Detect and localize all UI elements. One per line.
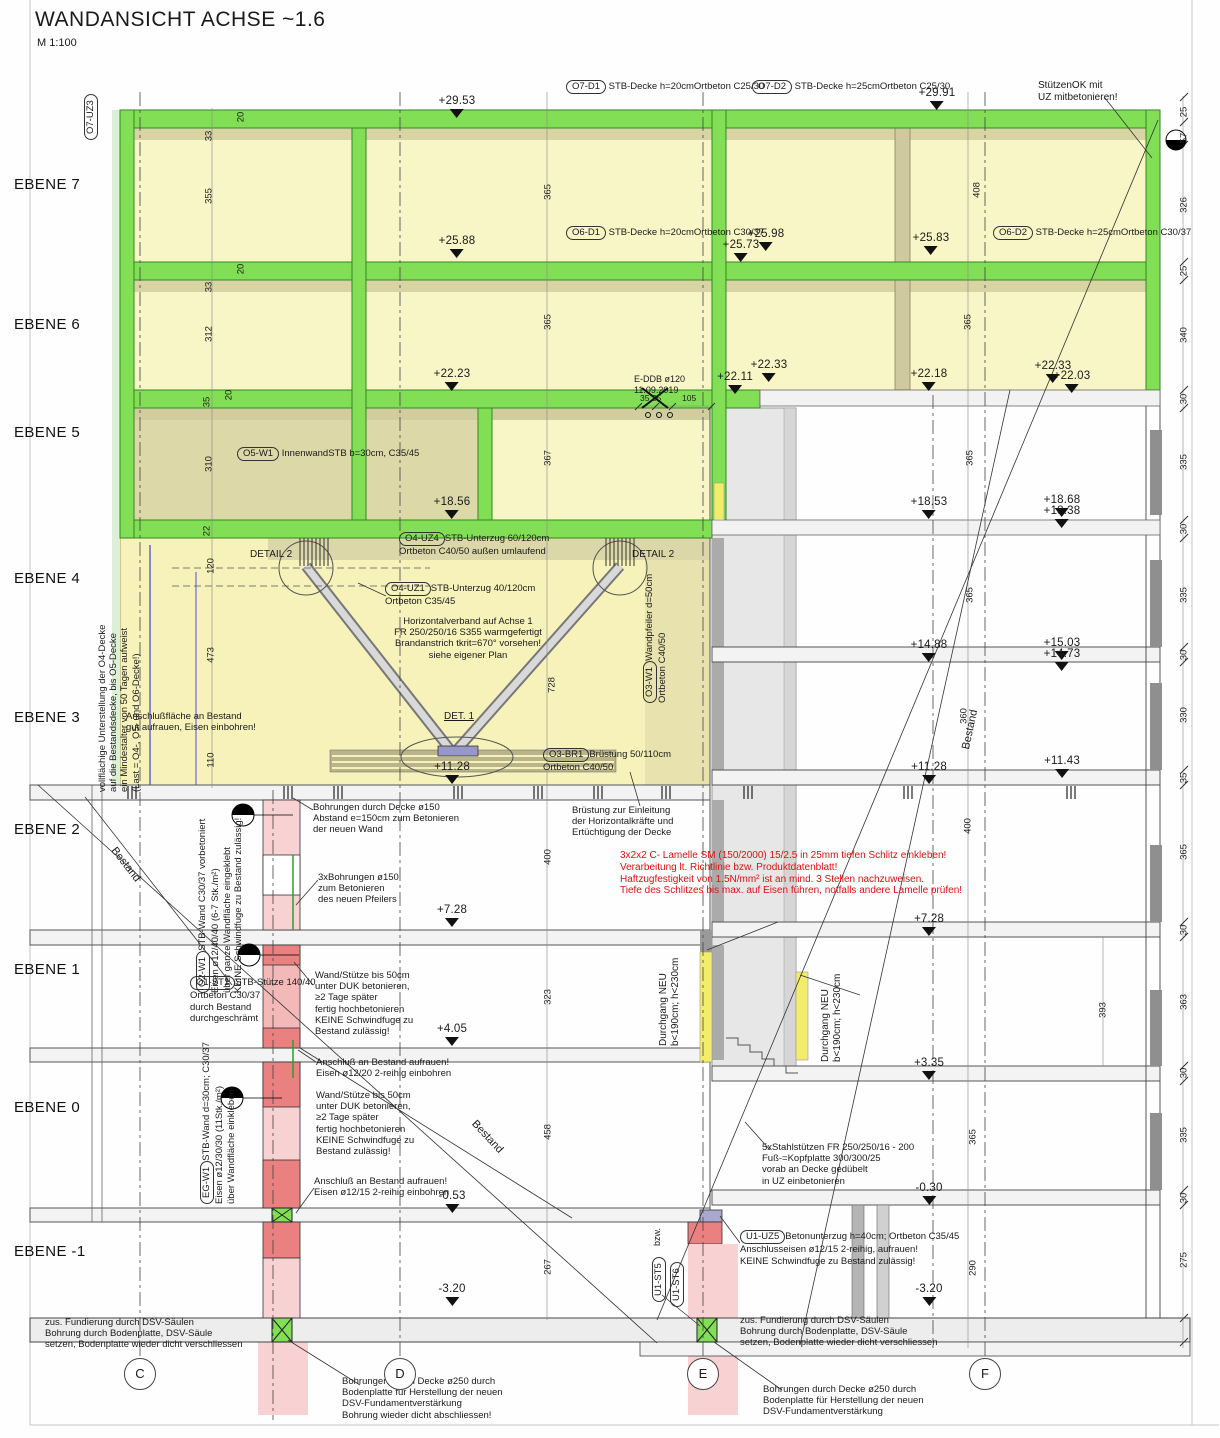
callout-u1-uz5: U1-UZ5Betonunterzug h=40cm; Ortbeton C35…	[740, 1230, 959, 1267]
callout-pill: U1-ST5	[652, 1257, 666, 1302]
elevation-triangle-icon	[445, 510, 459, 519]
label-detail2-left: DETAIL 2	[250, 549, 292, 561]
elevation-value: -3.20	[438, 1284, 465, 1296]
elevation-value: +25.73	[723, 240, 760, 252]
elevation-value: +18.53	[911, 497, 948, 509]
dimension-value: 30	[1179, 1068, 1190, 1079]
dimension-value: 367	[543, 450, 554, 466]
dim-35-35: 35 35	[640, 393, 661, 403]
label-det1: DET. 1	[444, 711, 474, 723]
label-detail2-right: DETAIL 2	[632, 549, 674, 561]
callout-o4-uz4: O4-UZ4STB-Unterzug 60/120cm Ortbeton C40…	[399, 532, 549, 558]
elevation-triangle-icon	[450, 249, 464, 258]
note-fundierung-links: zus. Fundierung durch DSV-Säulen Bohrung…	[45, 1317, 243, 1351]
axis-bubble-e: E	[687, 1358, 719, 1390]
dimension-value: 25	[1179, 266, 1190, 277]
elevation-value: +11.28	[911, 762, 947, 774]
elevation-marker: +11.43	[1044, 756, 1080, 778]
elevation-marker: +29.91	[919, 88, 956, 110]
note-bohrungen150: Bohrungen durch Decke ø150 Abstand e=150…	[313, 802, 459, 836]
dimension-value: 323	[543, 989, 554, 1005]
elevation-marker: -0.30	[915, 1183, 942, 1205]
elevation-triangle-icon	[922, 510, 936, 519]
callout-pill: O4-UZ1	[385, 582, 431, 596]
dimension-value: 33	[204, 131, 215, 142]
dimension-value: 22	[202, 526, 213, 537]
elevation-marker: +18.53	[911, 497, 948, 519]
level-label-4: EBENE 3	[14, 709, 80, 726]
callout-pill: EG-W1	[200, 1161, 214, 1204]
elevation-marker: +4.05	[437, 1024, 467, 1046]
dimension-value: 355	[204, 188, 215, 204]
elevation-value: +7.28	[437, 905, 467, 917]
callout-o3-w1: O3-W1Wandpfeiler d=50cm Ortbeton C40/50	[643, 574, 669, 703]
elevation-triangle-icon	[445, 1037, 459, 1046]
dimension-value: 400	[543, 849, 554, 865]
note-wandstuetze-1: Wand/Stütze bis 50cm unter DUK betoniere…	[315, 970, 413, 1037]
callout-u1-st6: U1-ST6	[670, 1262, 684, 1307]
dimension-value: 20	[236, 264, 247, 275]
axis-bubble-c: C	[124, 1358, 156, 1390]
callout-o7-uz3: O7-UZ3	[84, 94, 98, 140]
callout-u1-st5: U1-ST5	[652, 1257, 666, 1302]
dimension-value: 458	[543, 1124, 554, 1140]
elevation-marker: +22.23	[434, 369, 471, 391]
callout-pill: O3-W1	[643, 661, 657, 703]
elevation-value: +22.03	[1054, 371, 1091, 383]
callout-o3-br1: O3-BR1Brüstung 50/110cm Ortbeton C40/50	[543, 748, 671, 774]
callout-o7-d1: O7-D1 STB-Decke h=20cmOrtbeton C25/30	[566, 80, 764, 94]
elevation-marker: +18.38	[1044, 506, 1081, 528]
drawing-page: WANDANSICHT ACHSE ~1.6 M 1:100	[0, 0, 1220, 1438]
level-label-2: EBENE 5	[14, 424, 80, 441]
elevation-marker: +11.28	[911, 762, 947, 784]
elevation-triangle-icon	[1055, 662, 1069, 671]
label-durchgang-2: Durchgang NEU b<190cm; h<230cm	[820, 974, 844, 1062]
dimension-value: 25	[1179, 107, 1190, 118]
elevation-value: +22.23	[434, 369, 471, 381]
level-label-8: EBENE -1	[14, 1243, 86, 1260]
elevation-triangle-icon	[445, 1204, 459, 1213]
note-anschlussflaeche: Anschlußfläche an Bestand gut aufrauen, …	[126, 711, 256, 733]
level-label-6: EBENE 1	[14, 961, 80, 978]
dimension-value: 57	[1179, 133, 1190, 144]
callout-o6-d2: O6-D2 STB-Decke h=25cmOrtbeton C30/37	[993, 226, 1191, 240]
elevation-triangle-icon	[445, 918, 459, 927]
dimension-value: 33	[204, 282, 215, 293]
dimension-value: 360	[959, 708, 970, 724]
dimension-value: 728	[547, 677, 558, 693]
callout-pill: O6-D2	[993, 226, 1033, 240]
elevation-value: -0.53	[438, 1191, 465, 1203]
note-bohrungen250-rechts: Bohrungen durch Decke ø250 durch Bodenpl…	[763, 1384, 924, 1418]
elevation-triangle-icon	[445, 382, 459, 391]
dimension-value: 20	[236, 112, 247, 123]
elevation-value: -0.30	[915, 1183, 942, 1195]
note-bohrungen250-links: Bohrungen durch Decke ø250 durch Bodenpl…	[342, 1376, 503, 1421]
callout-pill: O7-D1	[566, 80, 606, 94]
elevation-marker: +7.28	[437, 905, 467, 927]
elevation-marker: +7.28	[914, 914, 944, 936]
dimension-value: 365	[965, 450, 976, 466]
callout-pill: O1-ST1	[190, 976, 235, 990]
dimension-value: 365	[1179, 844, 1190, 860]
elevation-value: +11.28	[434, 762, 470, 774]
label-bzw: bzw.	[652, 1228, 663, 1246]
dimension-value: 326	[1179, 197, 1190, 213]
dimension-value: 473	[206, 647, 217, 663]
dimension-value: 365	[968, 1129, 979, 1145]
elevation-triangle-icon	[922, 653, 936, 662]
callout-eg-w1: EG-W1STB-Wand d=30cm; C30/37 Eisen ø12/3…	[200, 1042, 237, 1204]
dimension-value: 35	[1179, 773, 1190, 784]
elevation-value: -3.20	[915, 1284, 942, 1296]
callout-o1-st1: O1-ST1STB-Stütze 140/40 Ortbeton C30/37 …	[190, 976, 316, 1024]
note-anschluss-12-20: Anschluß an Bestand aufrauen! Eisen ø12/…	[316, 1057, 451, 1079]
note-horizontalverband: Horizontalverband auf Achse 1 FR 250/250…	[368, 616, 568, 661]
dimension-value: 110	[206, 752, 217, 767]
callout-pill: O7-UZ3	[84, 94, 98, 140]
elevation-value: +4.05	[437, 1024, 467, 1036]
callout-desc: STB b=30cm, C35/45	[328, 448, 419, 459]
elevation-value: +7.28	[914, 914, 944, 926]
dimension-value: 275	[1179, 1252, 1190, 1268]
dimension-value: 30	[1179, 925, 1190, 936]
elevation-marker: +22.33	[751, 360, 788, 382]
note-stuetzenok: StützenOK mit UZ mitbetonieren!	[1038, 80, 1117, 104]
elevation-triangle-icon	[450, 109, 464, 118]
elevation-marker: +25.88	[439, 236, 476, 258]
elevation-triangle-icon	[1055, 769, 1069, 778]
dimension-value: 30	[1179, 1193, 1190, 1204]
level-label-0: EBENE 7	[14, 176, 80, 193]
elevation-value: +11.43	[1044, 756, 1080, 768]
note-3xbohrungen: 3xBohrungen ø150 zum Betonieren des neue…	[318, 872, 399, 906]
elevation-marker: +29.53	[439, 96, 476, 118]
dimension-value: 310	[204, 456, 215, 472]
elevation-value: +14.73	[1044, 649, 1081, 661]
callout-o5-w1: O5-W1 InnenwandSTB b=30cm, C35/45	[237, 447, 419, 461]
level-label-5: EBENE 2	[14, 821, 80, 838]
callout-pill: U1-ST6	[670, 1262, 684, 1307]
note-stahlstuetzen: 5xStahlstützen FR 250/250/16 - 200 Fuß-=…	[762, 1142, 914, 1187]
dimension-value: 290	[968, 1260, 979, 1276]
note-anschluss-12-15: Anschluß an Bestand aufrauen! Eisen ø12/…	[314, 1176, 449, 1198]
dimension-value: 30	[1179, 524, 1190, 535]
elevation-marker: +14.88	[911, 640, 948, 662]
elevation-triangle-icon	[924, 246, 938, 255]
elevation-marker: +25.73	[723, 240, 760, 262]
dimension-value: 365	[965, 587, 976, 603]
elevation-value: +25.83	[913, 233, 950, 245]
callout-pill: O3-BR1	[543, 748, 589, 762]
dimension-value: 335	[1179, 1127, 1190, 1143]
elevation-marker: +25.83	[913, 233, 950, 255]
elevation-marker: -3.20	[915, 1284, 942, 1306]
elevation-value: +18.56	[434, 497, 471, 509]
dimension-value: 330	[1179, 707, 1190, 723]
elevation-value: +14.88	[911, 640, 948, 652]
callout-o4-uz1: O4-UZ1STB-Unterzug 40/120cm Ortbeton C35…	[385, 582, 535, 608]
elevation-triangle-icon	[922, 1196, 936, 1205]
dimension-value: 120	[206, 558, 217, 574]
elevation-triangle-icon	[922, 927, 936, 936]
note-bruestung: Brüstung zur Einleitung der Horizontalkr…	[572, 805, 673, 839]
elevation-triangle-icon	[728, 385, 742, 394]
note-unterstellung: vollflächige Unterstellung der O4-Decke …	[97, 625, 142, 792]
axis-bubble-f: F	[969, 1358, 1001, 1390]
elevation-marker: +18.56	[434, 497, 471, 519]
elevation-value: +22.11	[717, 372, 753, 384]
dim-105: 105	[682, 393, 696, 403]
dimension-value: 363	[1179, 994, 1190, 1010]
dimension-value: 30	[1179, 650, 1190, 661]
dimension-value: 408	[972, 182, 983, 198]
elevation-marker: -3.20	[438, 1284, 465, 1306]
elevation-triangle-icon	[922, 1297, 936, 1306]
elevation-marker: +22.03	[1054, 371, 1091, 393]
elevation-marker: +3.35	[914, 1058, 944, 1080]
elevation-value: +22.18	[911, 369, 948, 381]
elevation-value: +18.38	[1044, 506, 1081, 518]
dimension-value: 365	[543, 184, 554, 200]
elevation-triangle-icon	[1065, 384, 1079, 393]
lower-left-wall	[92, 785, 102, 1222]
elevation-marker: -0.53	[438, 1191, 465, 1213]
elevation-triangle-icon	[922, 1071, 936, 1080]
label-durchgang-1: Durchgang NEU b<190cm; h<230cm	[658, 958, 682, 1046]
elevation-triangle-icon	[930, 101, 944, 110]
callout-desc: Ortbeton C30/37	[1121, 227, 1191, 238]
elevation-triangle-icon	[922, 382, 936, 391]
callout-o2-w1: O2-W1STB-Wand C30/37 vorbetoniert Eisen …	[196, 818, 244, 993]
elevation-value: +29.91	[919, 88, 956, 100]
elevation-triangle-icon	[762, 373, 776, 382]
elevation-triangle-icon	[734, 253, 748, 262]
note-wandstuetze-2: Wand/Stütze bis 50cm unter DUK betoniere…	[316, 1090, 414, 1157]
elevation-marker: +11.28	[434, 762, 470, 784]
dimension-value: 335	[1179, 454, 1190, 470]
dimension-value: 340	[1179, 327, 1190, 343]
elevation-marker: +14.73	[1044, 649, 1081, 671]
dimension-value: 312	[204, 326, 215, 342]
elevation-marker: +22.18	[911, 369, 948, 391]
elevation-triangle-icon	[445, 775, 459, 784]
level-label-7: EBENE 0	[14, 1099, 80, 1116]
dimension-value: 35	[202, 397, 213, 408]
dimension-value: 267	[543, 1259, 554, 1275]
dimension-value: 393	[1098, 1002, 1109, 1018]
dimension-value: 335	[1179, 587, 1190, 603]
elevation-marker: +22.11	[717, 372, 753, 394]
dimension-value: 20	[224, 390, 235, 401]
callout-pill: O7-D2	[752, 80, 792, 94]
elevation-triangle-icon	[759, 242, 773, 251]
note-fundierung-rechts: zus. Fundierung durch DSV-Säulen Bohrung…	[740, 1315, 938, 1349]
dimension-value: 30	[1179, 394, 1190, 405]
note-lamelle: 3x2x2 C- Lamelle SM (150/2000) 15/2.5 in…	[620, 850, 962, 897]
callout-pill: O4-UZ4	[399, 532, 445, 546]
callout-pill: O6-D1	[566, 226, 606, 240]
callout-pill: U1-UZ5	[740, 1230, 785, 1244]
elevation-value: +3.35	[914, 1058, 944, 1070]
axis-bubble-d: D	[384, 1358, 416, 1390]
level-label-3: EBENE 4	[14, 570, 80, 587]
dimension-value: 365	[543, 314, 554, 330]
upper-floors	[112, 110, 1146, 538]
elevation-triangle-icon	[922, 775, 936, 784]
dimension-value: 400	[963, 818, 974, 834]
callout-pill: O5-W1	[237, 447, 279, 461]
dimension-value: 365	[963, 314, 974, 330]
elevation-value: +25.88	[439, 236, 476, 248]
level-label-1: EBENE 6	[14, 316, 80, 333]
elevation-triangle-icon	[445, 1297, 459, 1306]
elevation-value: +22.33	[751, 360, 788, 372]
elevation-triangle-icon	[1055, 519, 1069, 528]
elevation-value: +29.53	[439, 96, 476, 108]
